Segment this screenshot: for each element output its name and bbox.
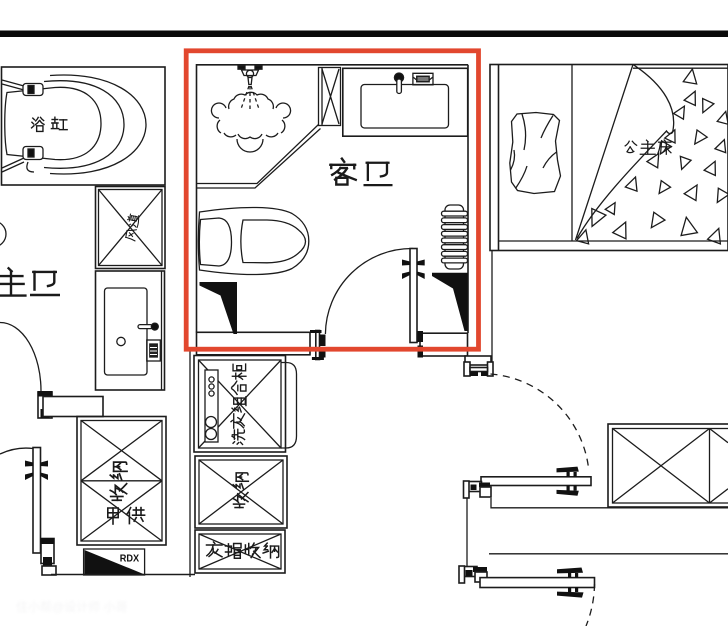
- svg-text:RDX: RDX: [120, 553, 140, 564]
- svg-text:住小帮@设计师 小哥: 住小帮@设计师 小哥: [16, 600, 128, 614]
